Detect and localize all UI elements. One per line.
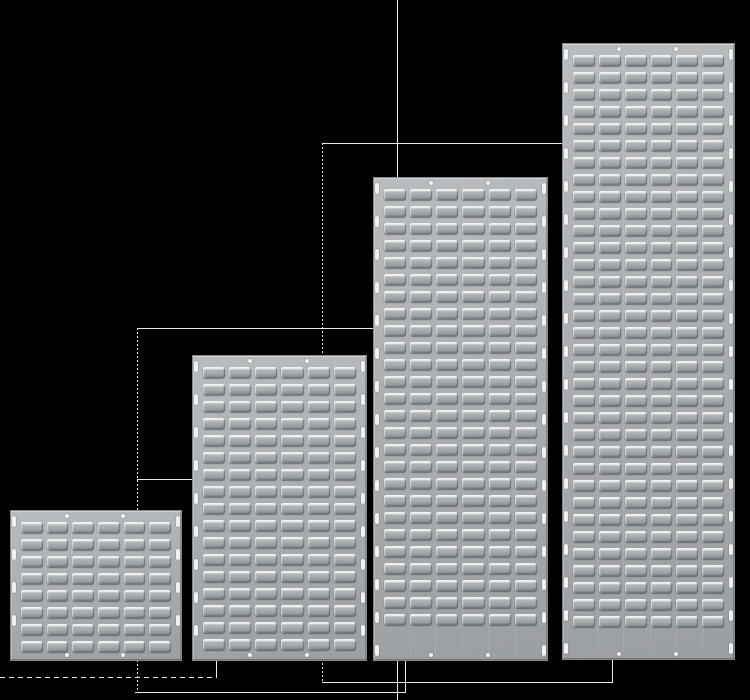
louver-grid	[19, 519, 173, 655]
louver-slot	[47, 624, 69, 635]
louver-slot	[308, 469, 330, 480]
louver-slot	[255, 469, 277, 480]
louver-slot	[384, 410, 406, 421]
mounting-slot	[564, 148, 568, 159]
mounting-slot	[176, 615, 180, 626]
louver-slot	[98, 522, 120, 533]
louver-slot	[410, 359, 432, 370]
mounting-slot	[542, 183, 546, 194]
louver-slot	[489, 512, 511, 523]
louver-slot	[98, 590, 120, 601]
louver-slot	[651, 395, 673, 406]
louver-slot	[573, 259, 595, 270]
louver-slot	[255, 486, 277, 497]
louver-slot	[149, 607, 171, 618]
louver-grid	[201, 364, 358, 653]
louver-slot	[462, 597, 484, 608]
louver-slot	[436, 427, 458, 438]
mounting-slot	[194, 625, 198, 636]
louver-slot	[702, 429, 724, 440]
mounting-hole	[486, 653, 490, 657]
louver-slot	[676, 497, 698, 508]
louver-slot	[462, 359, 484, 370]
louver-slot	[436, 410, 458, 421]
louver-slot	[255, 401, 277, 412]
louver-slot	[255, 571, 277, 582]
louver-slot	[384, 478, 406, 489]
louver-slot	[573, 378, 595, 389]
mounting-slot	[729, 610, 733, 621]
louver-slot	[599, 89, 621, 100]
louver-slot	[625, 497, 647, 508]
mounting-slot	[564, 577, 568, 588]
louver-slot	[462, 274, 484, 285]
louver-slot	[599, 480, 621, 491]
louver-slot	[149, 573, 171, 584]
louver-slot	[651, 208, 673, 219]
louver-slot	[308, 401, 330, 412]
louver-slot	[625, 89, 647, 100]
louver-slot	[599, 191, 621, 202]
mounting-slot	[375, 183, 379, 194]
louver-slot	[21, 556, 43, 567]
louver-slot	[702, 55, 724, 66]
louver-slot	[651, 191, 673, 202]
louver-slot	[676, 123, 698, 134]
louver-slot	[334, 384, 356, 395]
louver-slot	[573, 514, 595, 525]
louver-slot	[436, 495, 458, 506]
louver-slot	[47, 607, 69, 618]
louver-slot	[625, 531, 647, 542]
louvre-panel-xlarge	[562, 43, 735, 660]
louver-slot	[702, 72, 724, 83]
louver-slot	[281, 639, 303, 650]
leader-line-top-horizontal	[322, 143, 562, 144]
louver-slot	[599, 463, 621, 474]
mounting-slot	[194, 361, 198, 372]
louver-slot	[515, 444, 537, 455]
mounting-slot	[564, 181, 568, 192]
mounting-slot	[361, 427, 365, 438]
louver-slot	[436, 308, 458, 319]
louver-slot	[47, 573, 69, 584]
louver-slot	[281, 571, 303, 582]
louver-slot	[599, 412, 621, 423]
mounting-slot	[375, 480, 379, 491]
louver-slot	[489, 427, 511, 438]
louver-slot	[334, 588, 356, 599]
louver-slot	[625, 106, 647, 117]
louver-slot	[599, 140, 621, 151]
louver-slot	[515, 291, 537, 302]
louver-slot	[281, 622, 303, 633]
louver-slot	[203, 486, 225, 497]
mounting-hole	[248, 359, 252, 363]
mounting-slot	[729, 577, 733, 588]
louver-slot	[462, 427, 484, 438]
louver-slot	[702, 531, 724, 542]
louver-slot	[599, 446, 621, 457]
mounting-slot	[564, 511, 568, 522]
mounting-slot	[361, 559, 365, 570]
mounting-slot	[729, 544, 733, 555]
louver-slot	[599, 395, 621, 406]
mounting-slot	[729, 148, 733, 159]
louver-slot	[515, 529, 537, 540]
louver-slot	[702, 242, 724, 253]
louver-slot	[436, 376, 458, 387]
louver-slot	[651, 310, 673, 321]
louver-slot	[573, 446, 595, 457]
louver-slot	[436, 359, 458, 370]
louver-slot	[229, 554, 251, 565]
louver-slot	[21, 607, 43, 618]
louver-slot	[702, 89, 724, 100]
louver-slot	[676, 174, 698, 185]
mounting-slot	[564, 544, 568, 555]
louver-slot	[676, 514, 698, 525]
louver-slot	[436, 444, 458, 455]
louver-slot	[676, 191, 698, 202]
louver-slot	[599, 429, 621, 440]
louver-slot	[21, 522, 43, 533]
louver-slot	[229, 367, 251, 378]
louver-slot	[573, 123, 595, 134]
louver-slot	[281, 469, 303, 480]
louver-slot	[625, 378, 647, 389]
louver-slot	[702, 378, 724, 389]
mounting-hole	[429, 181, 433, 185]
louver-slot	[384, 325, 406, 336]
louver-slot	[229, 520, 251, 531]
mounting-slot	[542, 513, 546, 524]
mounting-hole	[486, 181, 490, 185]
louver-slot	[462, 614, 484, 625]
louver-slot	[98, 607, 120, 618]
louver-slot	[573, 72, 595, 83]
louver-slot	[599, 565, 621, 576]
mounting-slot	[12, 615, 16, 626]
louver-slot	[410, 223, 432, 234]
louver-slot	[676, 157, 698, 168]
louver-slot	[308, 605, 330, 616]
louver-slot	[255, 367, 277, 378]
louver-slot	[21, 590, 43, 601]
louver-slot	[462, 257, 484, 268]
louver-slot	[599, 157, 621, 168]
louver-slot	[462, 529, 484, 540]
louver-slot	[21, 624, 43, 635]
mounting-slot	[194, 526, 198, 537]
louver-slot	[229, 401, 251, 412]
louver-slot	[229, 486, 251, 497]
louver-slot	[384, 461, 406, 472]
louver-slot	[229, 452, 251, 463]
louver-slot	[676, 412, 698, 423]
mounting-slot	[729, 478, 733, 489]
louver-slot	[281, 367, 303, 378]
mounting-slot	[729, 445, 733, 456]
louver-slot	[124, 573, 146, 584]
louver-slot	[281, 503, 303, 514]
louver-slot	[489, 461, 511, 472]
louver-slot	[676, 344, 698, 355]
louver-slot	[203, 418, 225, 429]
louver-slot	[384, 546, 406, 557]
mounting-hole	[617, 652, 621, 656]
louver-slot	[573, 463, 595, 474]
louver-slot	[599, 242, 621, 253]
louver-slot	[436, 274, 458, 285]
leader-line-bottom-dashed	[0, 677, 217, 678]
leader-line-small-horizontal	[137, 479, 192, 480]
mounting-slot	[542, 645, 546, 656]
louver-slot	[676, 276, 698, 287]
louver-slot	[410, 308, 432, 319]
louver-slot	[599, 123, 621, 134]
louver-slot	[489, 580, 511, 591]
louver-slot	[384, 240, 406, 251]
louver-slot	[702, 191, 724, 202]
louver-slot	[410, 546, 432, 557]
leader-line-mid-horizontal	[137, 328, 374, 329]
louver-slot	[599, 361, 621, 372]
louver-slot	[625, 225, 647, 236]
louver-slot	[702, 361, 724, 372]
louver-slot	[410, 376, 432, 387]
louver-slot	[229, 571, 251, 582]
louver-slot	[436, 325, 458, 336]
mounting-slot	[361, 592, 365, 603]
louver-slot	[203, 520, 225, 531]
louver-slot	[651, 616, 673, 627]
louver-slot	[384, 614, 406, 625]
louver-slot	[384, 291, 406, 302]
louver-slot	[281, 520, 303, 531]
louvre-panel-medium	[192, 355, 367, 661]
louver-slot	[573, 548, 595, 559]
mounting-slot	[194, 592, 198, 603]
louver-slot	[651, 463, 673, 474]
louver-slot	[436, 240, 458, 251]
louver-slot	[255, 452, 277, 463]
louver-slot	[384, 274, 406, 285]
louver-slot	[599, 55, 621, 66]
louver-slot	[515, 597, 537, 608]
louver-slot	[334, 401, 356, 412]
louver-slot	[334, 486, 356, 497]
louver-slot	[410, 427, 432, 438]
louver-slot	[281, 486, 303, 497]
louver-slot	[651, 89, 673, 100]
louver-slot	[384, 257, 406, 268]
mounting-hole	[65, 653, 69, 657]
louver-slot	[702, 514, 724, 525]
louver-slot	[489, 342, 511, 353]
louver-slot	[281, 452, 303, 463]
louver-slot	[124, 607, 146, 618]
louver-slot	[625, 55, 647, 66]
louvre-panel-small	[10, 510, 182, 661]
louver-slot	[410, 495, 432, 506]
louver-slot	[98, 539, 120, 550]
mounting-slot	[729, 82, 733, 93]
louver-slot	[255, 537, 277, 548]
louver-slot	[410, 478, 432, 489]
louver-slot	[599, 106, 621, 117]
louver-slot	[676, 259, 698, 270]
louver-slot	[410, 597, 432, 608]
louver-slot	[573, 106, 595, 117]
louver-slot	[72, 539, 94, 550]
louver-slot	[676, 89, 698, 100]
mounting-slot	[375, 348, 379, 359]
louver-slot	[515, 359, 537, 370]
louver-slot	[462, 546, 484, 557]
louver-slot	[149, 522, 171, 533]
louver-slot	[255, 503, 277, 514]
louver-slot	[651, 378, 673, 389]
louver-slot	[573, 55, 595, 66]
louver-slot	[384, 563, 406, 574]
louver-slot	[515, 495, 537, 506]
louver-slot	[702, 480, 724, 491]
louver-slot	[651, 242, 673, 253]
louver-slot	[515, 325, 537, 336]
mounting-slot	[729, 49, 733, 60]
louver-slot	[573, 395, 595, 406]
louver-slot	[255, 639, 277, 650]
louver-slot	[573, 140, 595, 151]
louver-slot	[702, 344, 724, 355]
mounting-slot	[729, 115, 733, 126]
louver-slot	[515, 206, 537, 217]
louver-slot	[203, 435, 225, 446]
louver-slot	[334, 503, 356, 514]
mounting-slot	[194, 394, 198, 405]
louver-slot	[625, 191, 647, 202]
louver-slot	[599, 344, 621, 355]
louver-slot	[436, 478, 458, 489]
mounting-slot	[194, 559, 198, 570]
louver-slot	[599, 599, 621, 610]
leader-line-bottom-right-horizontal	[322, 682, 613, 683]
louver-slot	[47, 590, 69, 601]
louver-slot	[651, 123, 673, 134]
mounting-slot	[375, 612, 379, 623]
louver-slot	[21, 641, 43, 652]
louver-slot	[676, 208, 698, 219]
louver-slot	[203, 452, 225, 463]
louver-slot	[702, 293, 724, 304]
leader-line-panel3-bottom-vertical	[405, 660, 406, 693]
louver-slot	[203, 537, 225, 548]
louver-slot	[702, 463, 724, 474]
louver-slot	[308, 622, 330, 633]
louver-slot	[651, 497, 673, 508]
louver-slot	[384, 342, 406, 353]
louver-slot	[124, 590, 146, 601]
louver-slot	[229, 503, 251, 514]
louver-slot	[599, 225, 621, 236]
louver-slot	[203, 622, 225, 633]
louver-slot	[410, 325, 432, 336]
mounting-slot	[564, 49, 568, 60]
louver-slot	[515, 342, 537, 353]
mounting-slot	[375, 216, 379, 227]
louver-slot	[255, 605, 277, 616]
louver-slot	[229, 588, 251, 599]
louver-slot	[47, 641, 69, 652]
louver-slot	[651, 72, 673, 83]
louver-grid	[571, 52, 726, 630]
louver-slot	[334, 639, 356, 650]
louver-slot	[203, 554, 225, 565]
mounting-hole	[121, 514, 125, 518]
louver-slot	[462, 393, 484, 404]
louver-slot	[124, 641, 146, 652]
louver-slot	[676, 55, 698, 66]
mounting-slot	[375, 513, 379, 524]
louver-slot	[573, 157, 595, 168]
mounting-slot	[361, 625, 365, 636]
louver-slot	[334, 435, 356, 446]
louver-slot	[436, 614, 458, 625]
louver-slot	[651, 582, 673, 593]
louver-slot	[599, 174, 621, 185]
louver-slot	[599, 310, 621, 321]
louver-slot	[47, 556, 69, 567]
louver-slot	[651, 344, 673, 355]
louver-slot	[625, 446, 647, 457]
louver-slot	[98, 624, 120, 635]
louver-slot	[573, 582, 595, 593]
louver-slot	[702, 582, 724, 593]
louver-slot	[489, 563, 511, 574]
louver-slot	[462, 240, 484, 251]
louver-slot	[255, 554, 277, 565]
louver-slot	[573, 565, 595, 576]
mounting-slot	[12, 549, 16, 560]
louver-slot	[599, 72, 621, 83]
louvre-panel-large	[373, 177, 548, 661]
louver-slot	[462, 410, 484, 421]
mounting-slot	[12, 582, 16, 593]
louver-slot	[676, 616, 698, 627]
mounting-slot	[564, 478, 568, 489]
louver-slot	[676, 361, 698, 372]
louver-slot	[334, 452, 356, 463]
mounting-hole	[617, 47, 621, 51]
louver-slot	[308, 537, 330, 548]
mounting-slot	[729, 643, 733, 654]
louver-slot	[410, 512, 432, 523]
mounting-slot	[542, 612, 546, 623]
louver-slot	[489, 376, 511, 387]
louver-slot	[599, 208, 621, 219]
mounting-slot	[375, 381, 379, 392]
mounting-slot	[564, 82, 568, 93]
louver-slot	[149, 556, 171, 567]
louver-slot	[436, 206, 458, 217]
louver-slot	[410, 257, 432, 268]
louver-slot	[651, 157, 673, 168]
louver-slot	[384, 189, 406, 200]
louver-slot	[149, 590, 171, 601]
louver-slot	[72, 607, 94, 618]
louver-slot	[281, 605, 303, 616]
